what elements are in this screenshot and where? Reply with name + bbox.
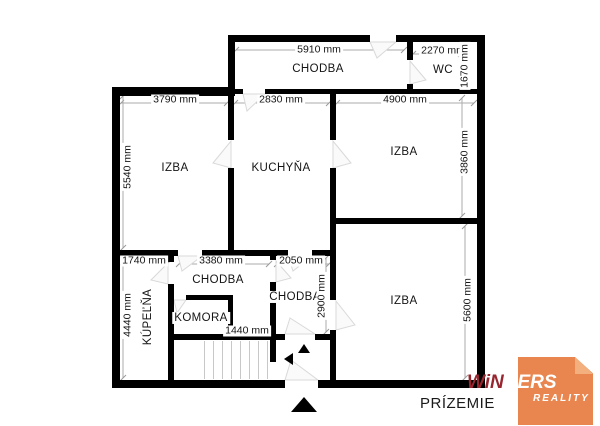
dimension-label: 4900 mm	[381, 94, 429, 105]
wall	[186, 295, 233, 300]
room-label-izba-bottom: IZBA	[388, 295, 419, 307]
room-label-chodba-right: CHODBA	[267, 291, 323, 303]
dimension-label: 3380 mm	[197, 255, 245, 266]
wall	[318, 380, 485, 388]
door-swing	[213, 141, 231, 168]
wall	[407, 42, 413, 60]
logo-brand-light: NERS	[504, 372, 557, 393]
dimension-label: 2050 mm	[277, 255, 325, 266]
wall	[315, 334, 336, 340]
door-swing	[333, 141, 351, 168]
room-label-kupelna: KÚPEĽŇA	[142, 287, 154, 348]
dimension-label: 5600 mm	[462, 276, 473, 324]
wall	[477, 35, 485, 388]
wall	[228, 35, 370, 42]
wall	[330, 218, 477, 224]
wall	[396, 35, 485, 42]
door-swing	[285, 318, 315, 334]
dimension-label: 5540 mm	[122, 143, 133, 191]
dimension-label: 4440 mm	[122, 291, 133, 339]
dimension-label: 1670 mm	[459, 42, 470, 90]
room-label-izba-right-top: IZBA	[388, 146, 419, 158]
wall	[168, 284, 174, 382]
wall	[112, 87, 120, 388]
dimension-label: 3790 mm	[151, 94, 199, 105]
dimension-label: 1440 mm	[223, 325, 271, 336]
room-label-chodba-top: CHODBA	[290, 63, 346, 75]
stairs-up-arrow-icon	[298, 344, 310, 353]
dimension-label: 3860 mm	[459, 128, 470, 176]
logo-brand-text: WiNNERS	[467, 373, 557, 392]
logo-brand-dark: WiN	[467, 372, 504, 393]
dimension-label: 2900 mm	[316, 272, 327, 320]
wall	[228, 94, 234, 140]
floor-title: PRÍZEMIE	[420, 395, 495, 412]
wall	[112, 380, 285, 388]
wall	[330, 223, 336, 300]
room-label-chodba-middle: CHODBA	[190, 274, 246, 286]
floor-plan-canvas: CHODBAWCIZBAKUCHYŇAIZBACHODBAKÚPEĽŇAKOMO…	[0, 0, 600, 426]
dimension-label: 2830 mm	[257, 94, 305, 105]
staircase	[196, 341, 270, 379]
wall	[330, 168, 336, 223]
wall	[228, 168, 234, 256]
room-label-komora: KOMORA	[172, 312, 230, 324]
door-swing	[336, 301, 355, 330]
room-label-izba-left: IZBA	[159, 162, 190, 174]
wall	[228, 35, 235, 94]
dimension-label: 5910 mm	[295, 44, 343, 55]
door-swing	[410, 61, 426, 84]
stairs-left-arrow-icon	[284, 353, 293, 365]
room-label-kuchyna: KUCHYŇA	[249, 162, 312, 174]
logo-subtitle: REALITY	[533, 394, 590, 404]
wall	[330, 94, 336, 140]
entrance-arrow-icon	[291, 397, 317, 412]
room-label-wc: WC	[431, 64, 455, 76]
dimension-label: 1740 mm	[120, 255, 168, 266]
